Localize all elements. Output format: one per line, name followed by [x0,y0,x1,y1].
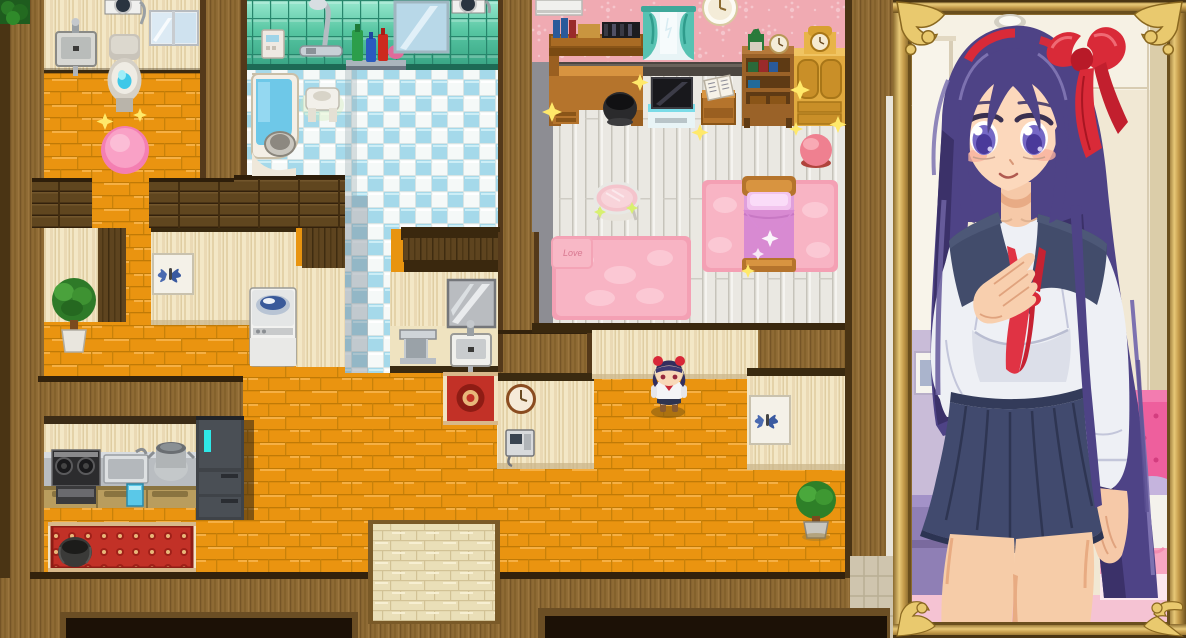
svg-text:Love: Love [563,248,583,258]
